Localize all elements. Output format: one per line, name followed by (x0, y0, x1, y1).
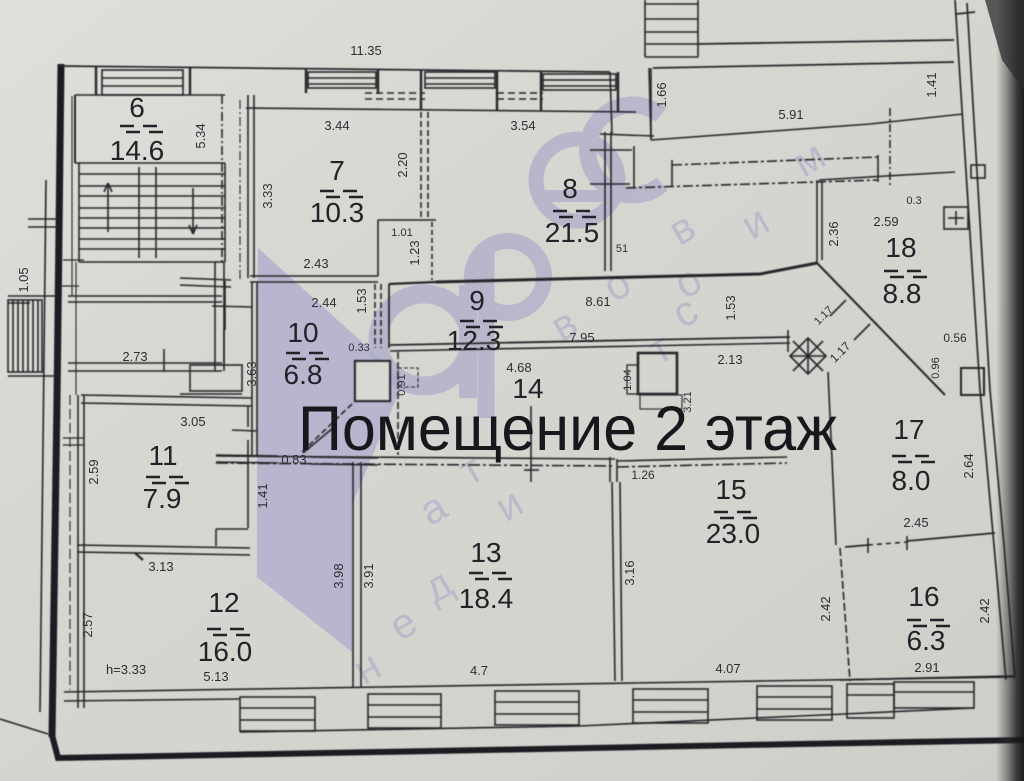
svg-text:0.56: 0.56 (943, 331, 967, 345)
svg-text:3.33: 3.33 (260, 183, 275, 208)
svg-text:2.45: 2.45 (903, 515, 928, 530)
svg-text:9: 9 (469, 285, 485, 316)
svg-text:15: 15 (715, 474, 746, 505)
svg-text:Помещение 2 этаж: Помещение 2 этаж (298, 394, 837, 464)
svg-text:0.91: 0.91 (396, 374, 408, 395)
svg-text:6: 6 (129, 92, 145, 123)
svg-text:2.36: 2.36 (826, 221, 841, 246)
svg-text:2.57: 2.57 (80, 612, 95, 637)
svg-text:2.91: 2.91 (914, 660, 939, 675)
svg-text:3.63: 3.63 (244, 361, 259, 386)
svg-text:3.54: 3.54 (510, 118, 535, 133)
svg-text:2.59: 2.59 (873, 214, 898, 229)
svg-text:7: 7 (329, 155, 345, 186)
svg-text:7.9: 7.9 (143, 483, 182, 514)
svg-text:3.91: 3.91 (361, 563, 376, 588)
svg-text:1.53: 1.53 (723, 295, 738, 320)
svg-text:12.3: 12.3 (447, 325, 502, 356)
svg-text:2.42: 2.42 (818, 596, 833, 621)
svg-text:3.16: 3.16 (622, 560, 637, 585)
svg-text:1.23: 1.23 (407, 240, 422, 265)
svg-text:3.98: 3.98 (331, 563, 346, 588)
svg-text:2.43: 2.43 (303, 256, 328, 271)
svg-text:2.44: 2.44 (311, 295, 336, 310)
svg-text:4.07: 4.07 (715, 661, 740, 676)
svg-text:2.59: 2.59 (86, 459, 101, 484)
svg-text:11: 11 (148, 440, 177, 471)
svg-text:16.0: 16.0 (198, 636, 253, 667)
svg-text:h=3.33: h=3.33 (106, 662, 146, 677)
svg-text:2.64: 2.64 (961, 453, 976, 478)
svg-text:5.34: 5.34 (193, 123, 208, 148)
svg-text:6.3: 6.3 (907, 625, 946, 656)
svg-text:1.01: 1.01 (391, 227, 412, 239)
svg-text:3.44: 3.44 (324, 118, 349, 133)
svg-text:21.5: 21.5 (545, 217, 600, 248)
svg-text:1.41: 1.41 (924, 72, 939, 97)
svg-text:13: 13 (470, 537, 501, 568)
svg-text:18.4: 18.4 (459, 583, 514, 614)
svg-text:2.20: 2.20 (395, 152, 410, 177)
svg-text:2.13: 2.13 (717, 352, 742, 367)
svg-text:17: 17 (893, 414, 924, 445)
svg-text:0.3: 0.3 (906, 195, 921, 207)
svg-text:1.53: 1.53 (354, 288, 369, 313)
svg-text:4.7: 4.7 (470, 663, 488, 678)
svg-text:6.8: 6.8 (284, 359, 323, 390)
svg-text:0.96: 0.96 (930, 357, 942, 378)
svg-text:16: 16 (908, 581, 939, 612)
svg-text:1.66: 1.66 (654, 82, 669, 107)
svg-text:0.33: 0.33 (348, 342, 369, 354)
svg-text:12: 12 (208, 587, 239, 618)
svg-text:8.8: 8.8 (883, 278, 922, 309)
svg-text:3.13: 3.13 (148, 559, 173, 574)
svg-text:5.13: 5.13 (203, 669, 228, 684)
svg-text:2.73: 2.73 (122, 349, 147, 364)
svg-text:10: 10 (287, 317, 318, 348)
svg-text:23.0: 23.0 (706, 518, 761, 549)
svg-text:2.42: 2.42 (977, 598, 992, 623)
svg-text:14.6: 14.6 (110, 135, 165, 166)
svg-text:10.3: 10.3 (310, 197, 365, 228)
svg-text:7.95: 7.95 (569, 330, 594, 345)
svg-text:11.35: 11.35 (350, 43, 382, 58)
svg-text:1.26: 1.26 (631, 468, 655, 482)
svg-text:3.05: 3.05 (180, 414, 205, 429)
svg-text:1.05: 1.05 (16, 267, 31, 292)
svg-text:8.0: 8.0 (892, 465, 931, 496)
svg-text:1.41: 1.41 (255, 483, 270, 508)
svg-text:51: 51 (616, 243, 628, 255)
svg-text:1.04: 1.04 (622, 369, 634, 390)
svg-text:18: 18 (885, 232, 916, 263)
svg-text:8.61: 8.61 (585, 294, 610, 309)
svg-text:5.91: 5.91 (778, 107, 803, 122)
svg-text:8: 8 (562, 173, 578, 204)
